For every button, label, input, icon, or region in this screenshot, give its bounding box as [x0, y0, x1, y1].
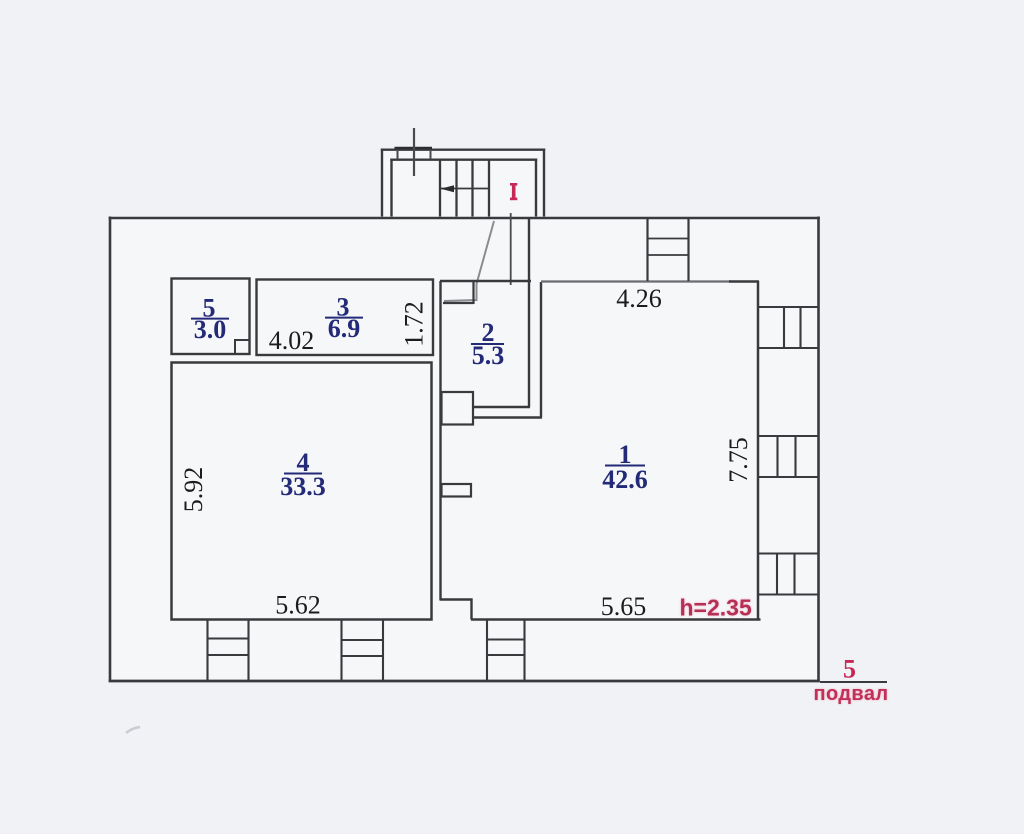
svg-text:подвал: подвал — [814, 683, 889, 705]
svg-text:5.62: 5.62 — [275, 591, 321, 620]
svg-text:5.65: 5.65 — [601, 592, 647, 621]
svg-text:5: 5 — [843, 655, 856, 684]
svg-text:33.3: 33.3 — [280, 472, 326, 501]
svg-text:42.6: 42.6 — [602, 465, 648, 494]
svg-text:7.75: 7.75 — [724, 437, 753, 483]
svg-text:3.0: 3.0 — [194, 315, 227, 344]
svg-text:h=2.35: h=2.35 — [680, 595, 752, 621]
svg-text:5.3: 5.3 — [472, 341, 505, 370]
svg-text:1.72: 1.72 — [400, 301, 429, 347]
svg-text:4.02: 4.02 — [269, 326, 315, 355]
svg-text:6.9: 6.9 — [328, 314, 361, 343]
svg-text:4.26: 4.26 — [616, 284, 662, 313]
svg-text:5.92: 5.92 — [179, 467, 208, 513]
